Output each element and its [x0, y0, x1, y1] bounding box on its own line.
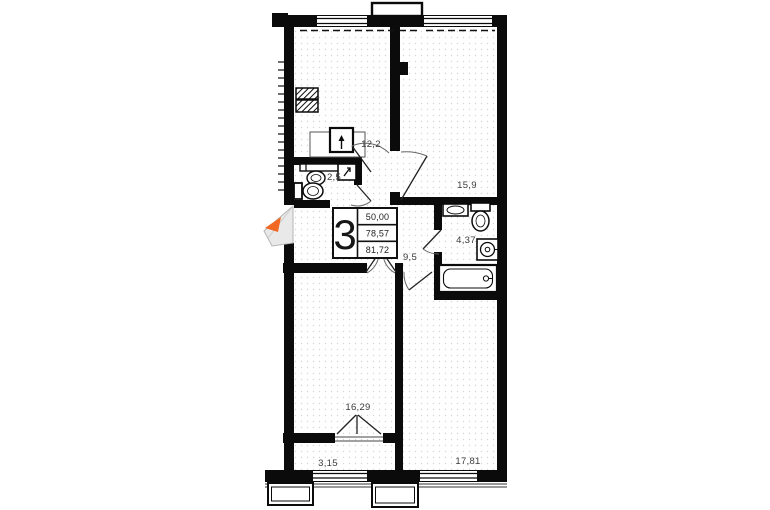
bathroom-sink: [443, 204, 468, 216]
badge-area-without-balcony: 78,57: [366, 229, 390, 239]
room-area-label-bedroom-bottom-right: 17,81: [455, 456, 480, 467]
roof-balcony-outline: [372, 3, 422, 16]
wc-toilet: [294, 183, 323, 199]
washing-machine-icon: [477, 239, 498, 260]
room-area-label-bedroom-top-right: 15,9: [457, 180, 477, 191]
bathroom-toilet: [471, 203, 490, 231]
room-area-label-wc: 2,5: [327, 172, 341, 183]
badge-living-area: 50,00: [366, 212, 390, 222]
room-area-label-bathroom: 4,37: [456, 235, 476, 246]
room-area-label-living-room: 16,29: [345, 402, 370, 413]
floor-plan-page: 12,2 15,9 2,5 4,37 9,5 16,29 3,15 17,81 …: [0, 0, 770, 510]
room-area-label-kitchen: 12,2: [361, 139, 381, 150]
vent-shaft: [296, 88, 318, 112]
floor-plan: 12,2 15,9 2,5 4,37 9,5 16,29 3,15 17,81 …: [0, 0, 770, 510]
room-area-label-balcony: 3,15: [318, 458, 338, 469]
badge-room-count: 3: [333, 211, 356, 258]
badge-total-area: 81,72: [366, 245, 390, 255]
left-wall-hatch: [278, 62, 285, 190]
room-area-label-hallway: 9,5: [403, 252, 417, 263]
info-badge: 3 50,00 78,57 81,72: [333, 208, 397, 258]
bathtub: [439, 265, 497, 292]
